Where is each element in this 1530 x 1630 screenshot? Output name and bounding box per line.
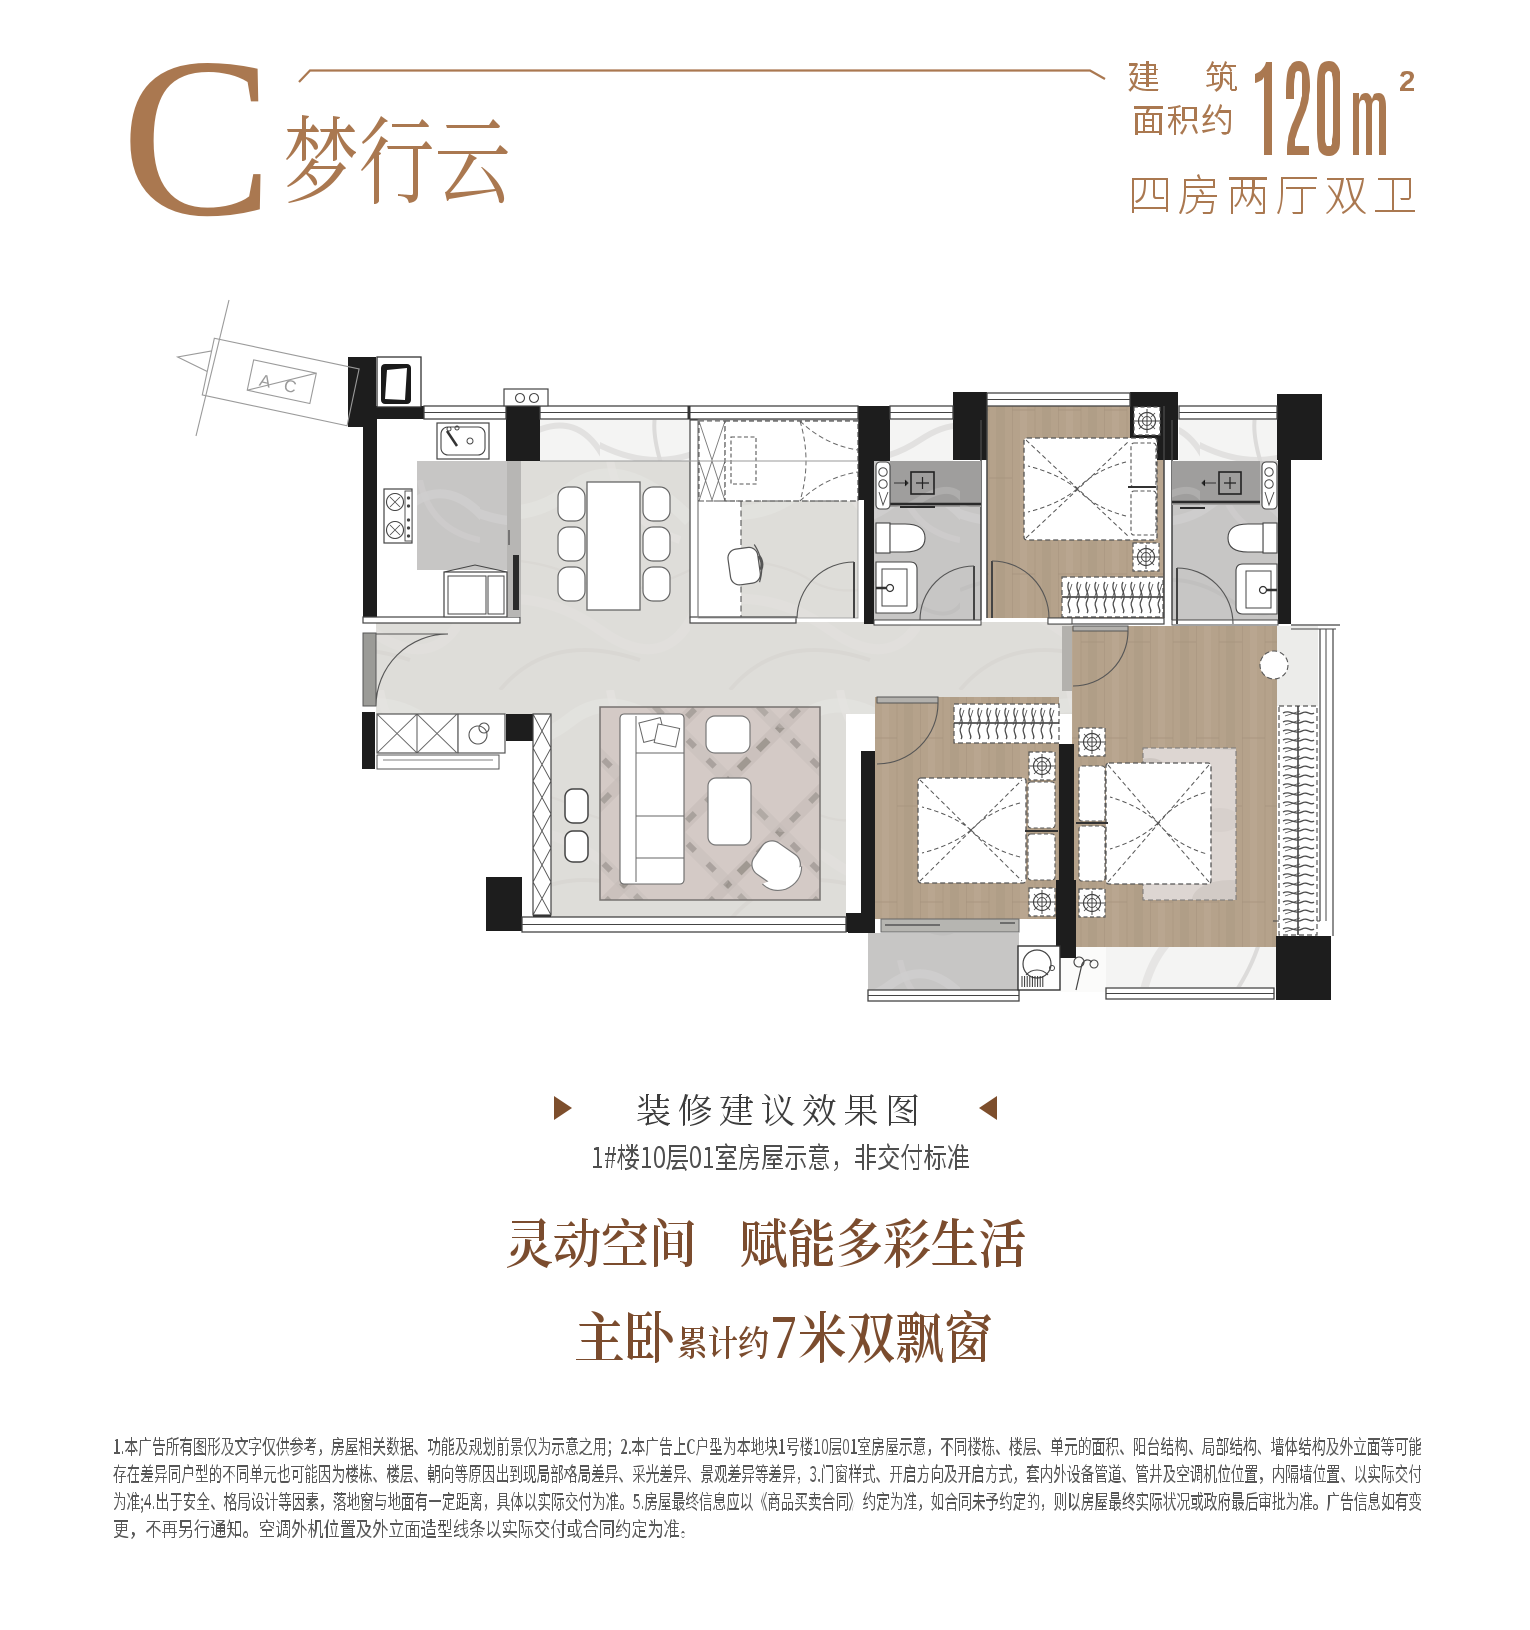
svg-text:C: C	[121, 12, 273, 264]
